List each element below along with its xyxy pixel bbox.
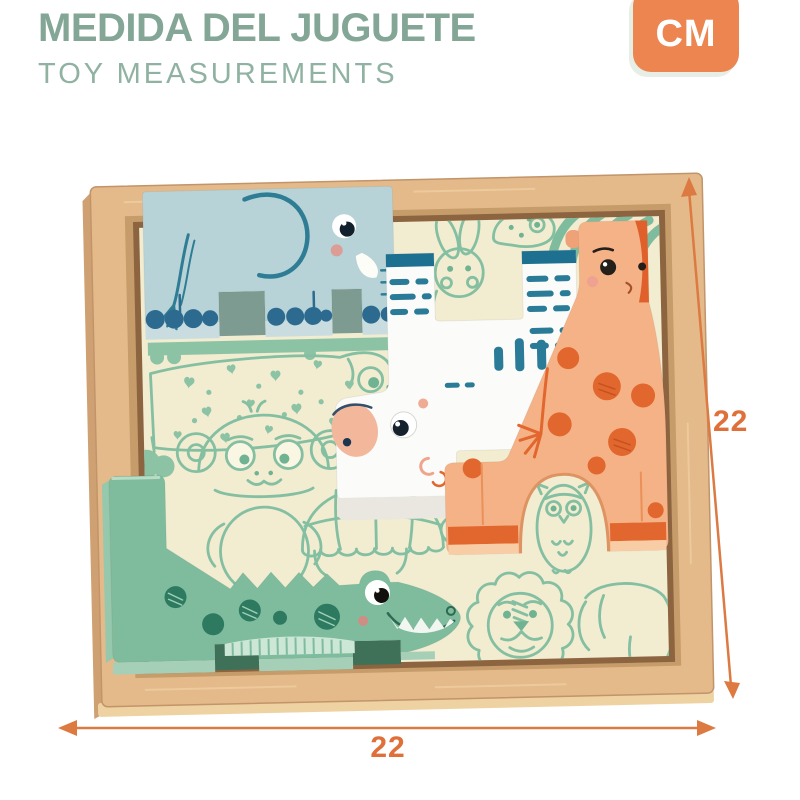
width-dimension: 22 bbox=[58, 720, 716, 764]
arrow-down-icon bbox=[724, 681, 740, 699]
product-measurement-card: MEDIDA DEL JUGUETE TOY MEASUREMENTS CM bbox=[0, 0, 800, 800]
giraffe-hoof-right bbox=[610, 522, 666, 541]
product-photo: 22 22 bbox=[0, 0, 800, 800]
height-label: 22 bbox=[713, 405, 748, 438]
unit-badge-label: CM bbox=[655, 13, 716, 56]
giraffe-hoof-left bbox=[448, 525, 518, 545]
page-title: MEDIDA DEL JUGUETE bbox=[38, 6, 476, 51]
page-subtitle: TOY MEASUREMENTS bbox=[38, 58, 476, 91]
puzzle-tray bbox=[82, 173, 714, 719]
width-label: 22 bbox=[370, 731, 405, 764]
header: MEDIDA DEL JUGUETE TOY MEASUREMENTS bbox=[38, 6, 476, 91]
elephant-piece bbox=[142, 186, 396, 340]
arrow-right-icon bbox=[697, 720, 716, 736]
unit-badge: CM bbox=[633, 0, 739, 72]
arrow-left-icon bbox=[58, 720, 77, 736]
